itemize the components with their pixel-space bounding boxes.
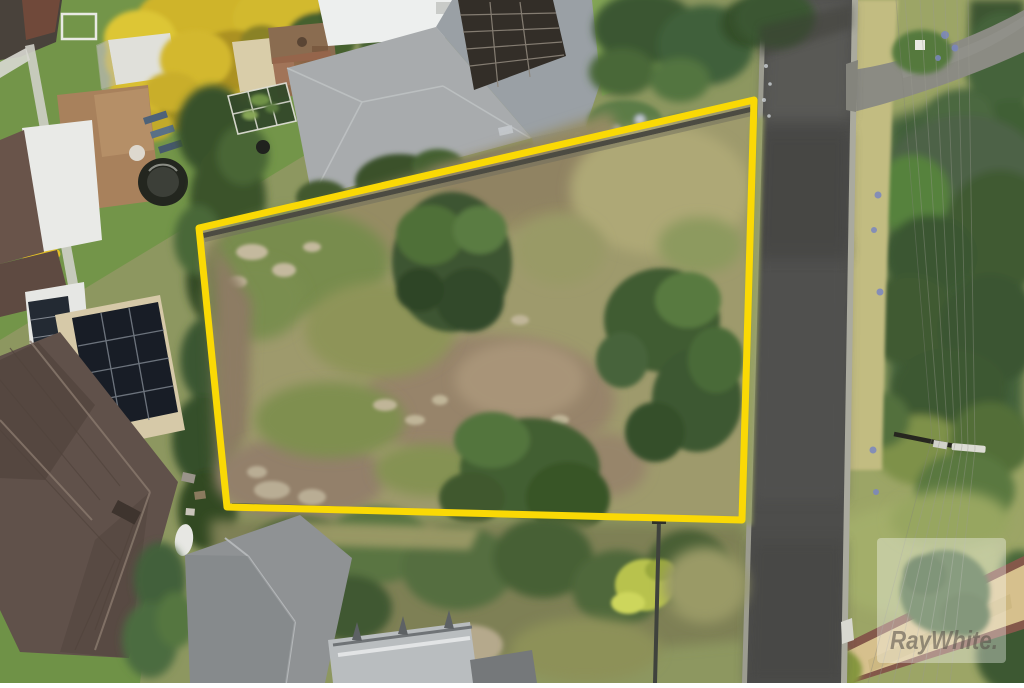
svg-text:RayWhite.: RayWhite. [890,625,998,655]
